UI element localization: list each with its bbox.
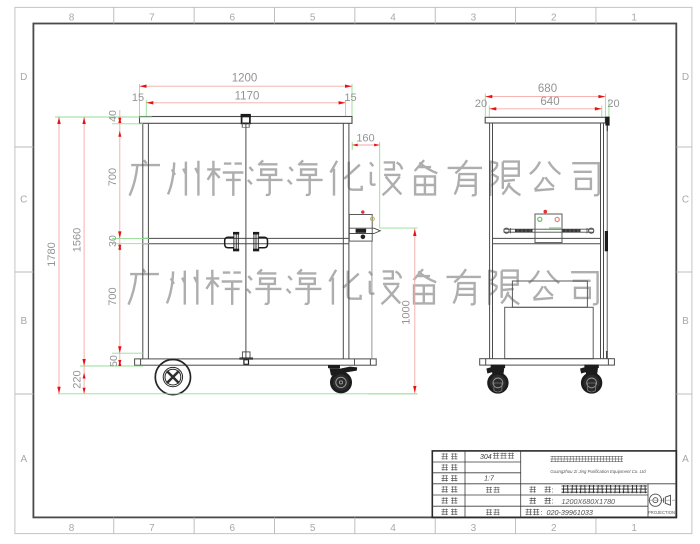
svg-text:3: 3 <box>471 523 477 534</box>
svg-text:700: 700 <box>107 168 119 186</box>
svg-text:4: 4 <box>390 523 396 534</box>
svg-text:1: 1 <box>631 523 637 534</box>
svg-text:8: 8 <box>69 13 75 24</box>
svg-text:B: B <box>682 316 689 327</box>
svg-text:6: 6 <box>230 523 236 534</box>
svg-text:2: 2 <box>551 13 557 24</box>
svg-text:1:7: 1:7 <box>484 476 495 483</box>
svg-text:7: 7 <box>149 13 155 24</box>
svg-text:D: D <box>682 72 689 83</box>
svg-text:40: 40 <box>107 110 119 122</box>
svg-text:A: A <box>682 454 689 465</box>
svg-text:20: 20 <box>475 98 487 110</box>
svg-text::: : <box>541 510 543 517</box>
svg-text:6: 6 <box>230 13 236 24</box>
svg-text:1200: 1200 <box>232 73 258 85</box>
svg-text:1000: 1000 <box>401 300 413 324</box>
svg-text:20: 20 <box>607 98 619 110</box>
svg-text:2: 2 <box>551 523 557 534</box>
svg-text:1780: 1780 <box>46 242 58 266</box>
svg-text:640: 640 <box>540 96 559 108</box>
svg-text:1200X680X1780: 1200X680X1780 <box>562 497 616 506</box>
svg-text:50: 50 <box>108 355 120 367</box>
svg-text:1170: 1170 <box>235 91 260 103</box>
svg-text::: : <box>552 499 554 506</box>
svg-text:D: D <box>20 72 27 83</box>
svg-text:1560: 1560 <box>72 228 84 252</box>
svg-text:30: 30 <box>107 235 119 247</box>
svg-text:160: 160 <box>356 133 374 145</box>
svg-text:5: 5 <box>310 13 316 24</box>
svg-text:C: C <box>20 194 27 205</box>
svg-text:020-39961033: 020-39961033 <box>547 508 593 517</box>
svg-text:C: C <box>682 194 689 205</box>
svg-text:3: 3 <box>471 13 477 24</box>
svg-text:1: 1 <box>631 13 637 24</box>
svg-text:B: B <box>20 316 27 327</box>
svg-text:8: 8 <box>69 523 75 534</box>
svg-text:15: 15 <box>132 92 144 104</box>
svg-text:5: 5 <box>310 523 316 534</box>
svg-text:Guangzhou Zi Jing Purification: Guangzhou Zi Jing Purification Equipment… <box>550 469 646 474</box>
svg-text:A: A <box>20 454 27 465</box>
svg-text::: : <box>552 488 554 495</box>
svg-text:4: 4 <box>390 13 396 24</box>
svg-text:220: 220 <box>72 370 84 388</box>
svg-text:680: 680 <box>538 83 557 95</box>
svg-text:15: 15 <box>344 92 356 104</box>
svg-text:7: 7 <box>149 523 155 534</box>
svg-text:700: 700 <box>107 287 119 305</box>
svg-text:304: 304 <box>480 454 492 461</box>
svg-text:PROJECTION: PROJECTION <box>648 510 675 515</box>
